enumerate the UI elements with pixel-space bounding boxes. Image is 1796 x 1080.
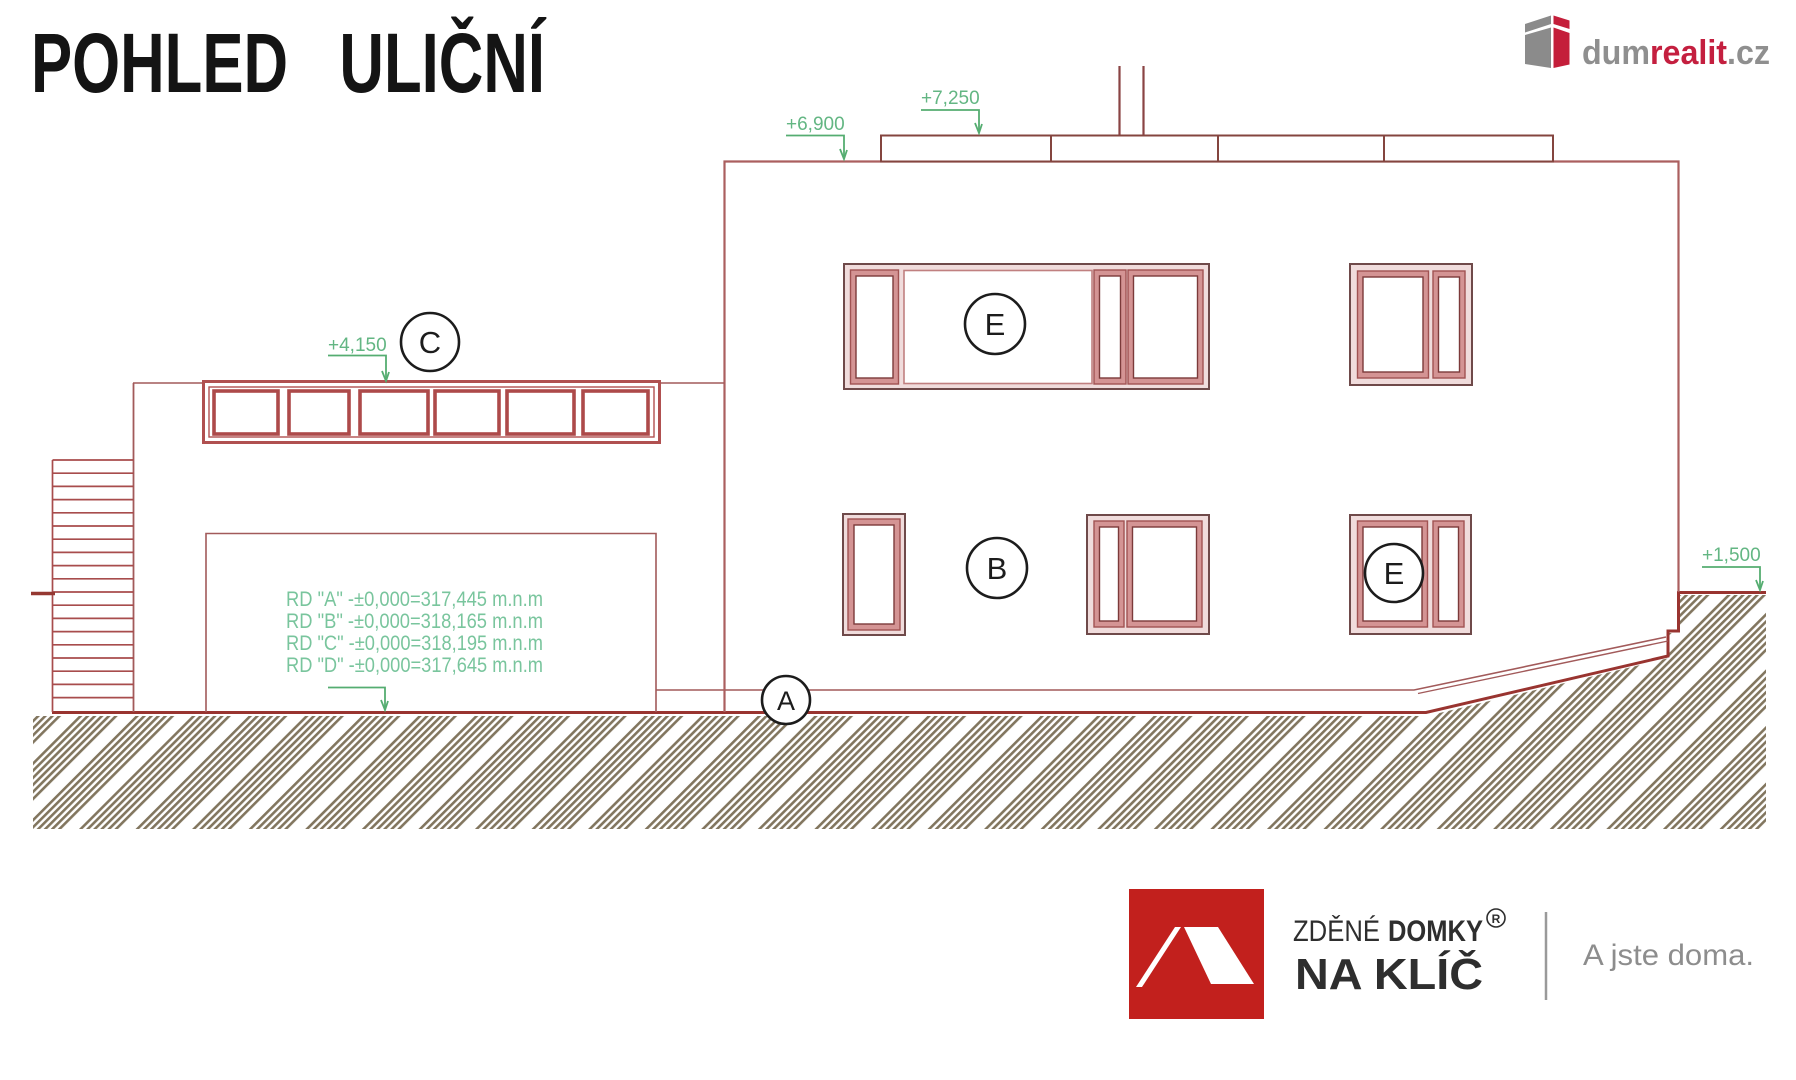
svg-text:E: E xyxy=(1384,556,1405,591)
svg-text:DOMKY: DOMKY xyxy=(1388,915,1483,948)
svg-text:RD "D" -±0,000=317,645 m.n.m: RD "D" -±0,000=317,645 m.n.m xyxy=(286,654,543,677)
svg-text:dumrealit.cz: dumrealit.cz xyxy=(1582,34,1770,72)
svg-text:A jste doma.: A jste doma. xyxy=(1583,939,1754,972)
svg-text:RD "B" -±0,000=318,165 m.n.m: RD "B" -±0,000=318,165 m.n.m xyxy=(286,610,543,633)
svg-text:R: R xyxy=(1492,912,1501,926)
svg-text:RD "C" -±0,000=318,195 m.n.m: RD "C" -±0,000=318,195 m.n.m xyxy=(286,632,543,655)
svg-text:POHLED ULIČNÍ: POHLED ULIČNÍ xyxy=(31,16,547,110)
svg-text:B: B xyxy=(987,551,1008,586)
svg-text:ZDĚNÉ: ZDĚNÉ xyxy=(1293,915,1380,948)
svg-text:+1,500: +1,500 xyxy=(1702,545,1761,566)
svg-text:A: A xyxy=(777,686,795,716)
svg-text:+7,250: +7,250 xyxy=(921,88,980,109)
svg-text:+6,900: +6,900 xyxy=(786,114,845,135)
svg-text:NA KLÍČ: NA KLÍČ xyxy=(1295,948,1483,999)
svg-text:C: C xyxy=(419,325,441,360)
svg-text:+4,150: +4,150 xyxy=(328,335,387,356)
svg-text:E: E xyxy=(985,307,1006,342)
svg-text:RD "A" -±0,000=317,445 m.n.m: RD "A" -±0,000=317,445 m.n.m xyxy=(286,588,543,611)
